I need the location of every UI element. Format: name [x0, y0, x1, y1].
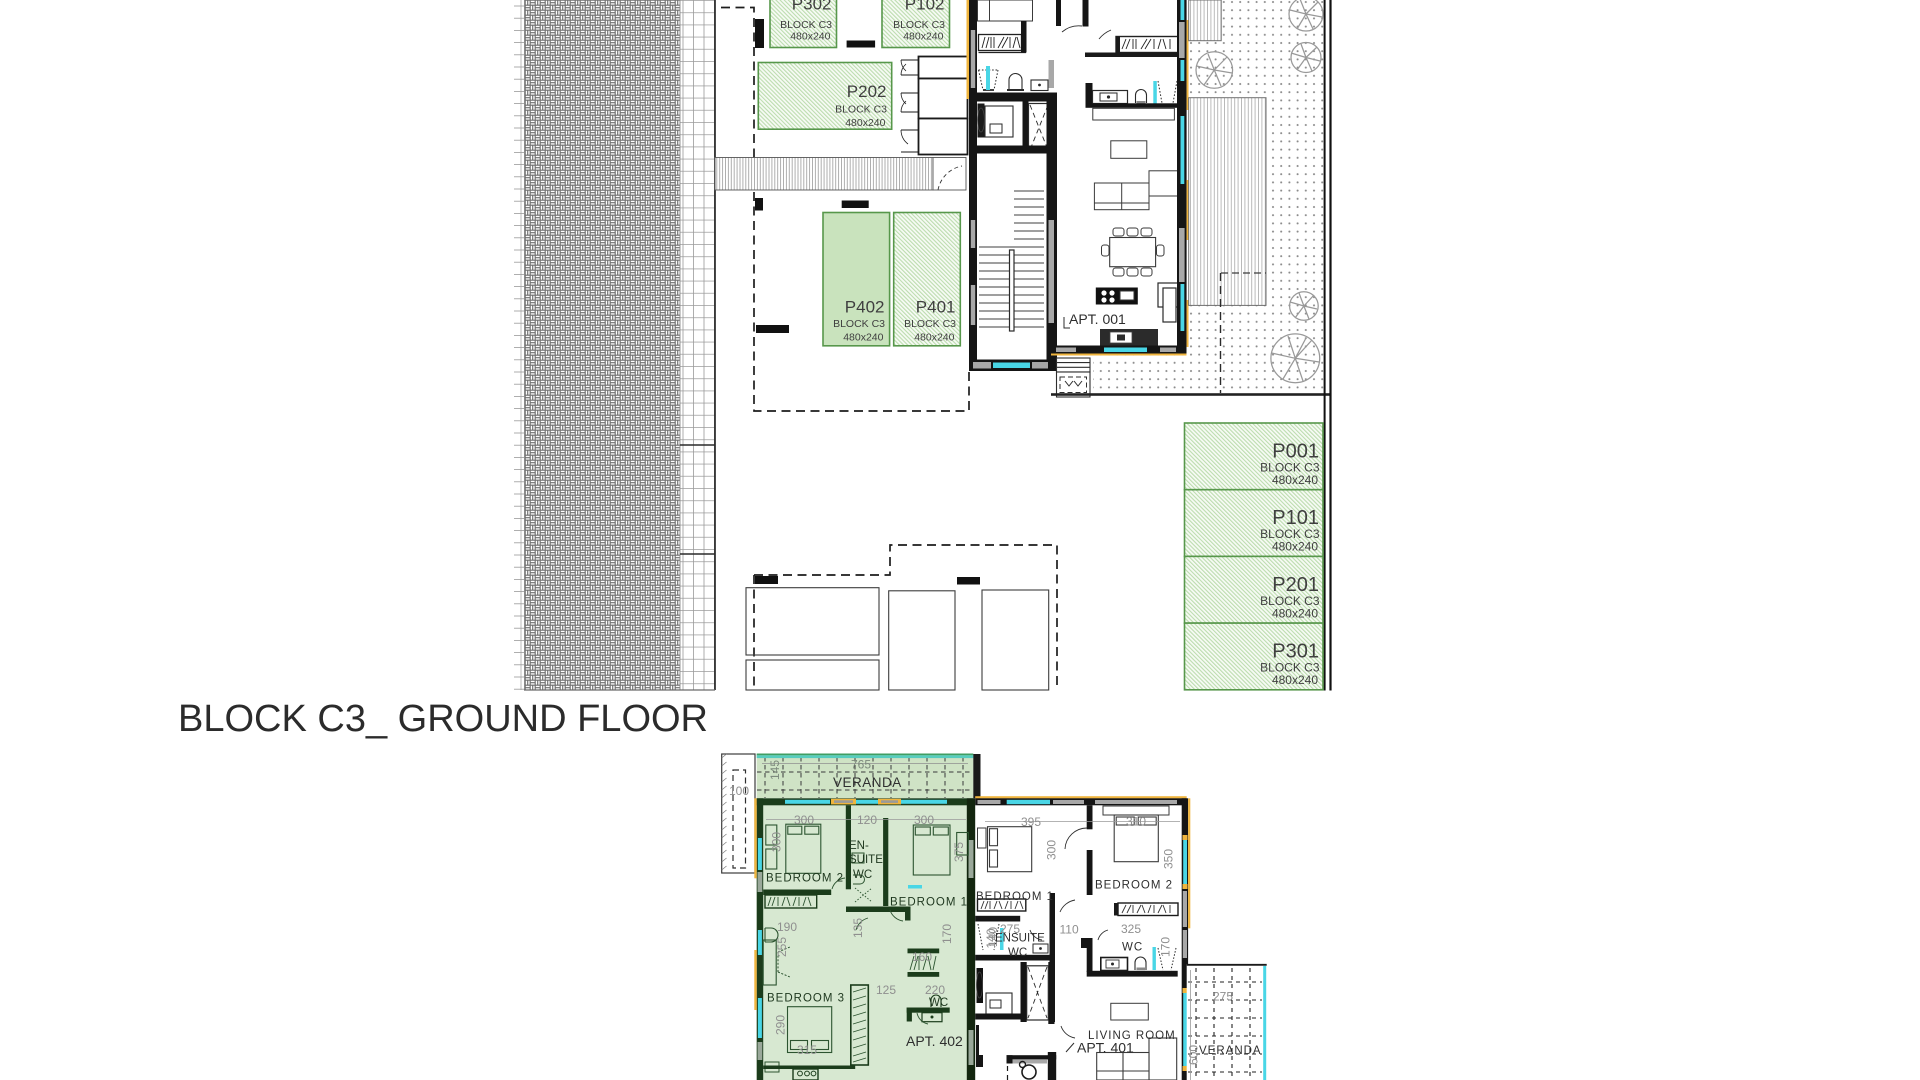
svg-text:290: 290: [774, 1015, 788, 1035]
svg-text:VERANDA: VERANDA: [1199, 1045, 1262, 1057]
svg-text:480x240: 480x240: [845, 117, 885, 129]
svg-text:BEDROOM 1: BEDROOM 1: [890, 897, 968, 909]
svg-text:BLOCK C3: BLOCK C3: [780, 19, 832, 31]
svg-text:P001: P001: [1272, 441, 1319, 463]
svg-text:275: 275: [1213, 990, 1233, 1004]
svg-text:315: 315: [797, 1043, 817, 1057]
svg-text:300: 300: [1045, 840, 1059, 860]
svg-text:P102: P102: [905, 0, 945, 14]
svg-text:WC: WC: [1122, 942, 1143, 954]
svg-text:100: 100: [729, 784, 749, 798]
svg-text:BLOCK C3: BLOCK C3: [904, 318, 956, 330]
svg-text:275: 275: [1000, 922, 1020, 936]
svg-text:BLOCK C3: BLOCK C3: [893, 19, 945, 31]
svg-text:480x240: 480x240: [1272, 673, 1318, 687]
svg-text:160: 160: [912, 950, 932, 964]
svg-text:220: 220: [925, 983, 945, 997]
svg-text:BLOCK C3_ GROUND FLOOR: BLOCK C3_ GROUND FLOOR: [178, 698, 708, 740]
svg-text:480x240: 480x240: [914, 332, 954, 344]
svg-text:BLOCK C3: BLOCK C3: [835, 104, 887, 116]
svg-text:300: 300: [914, 813, 934, 827]
svg-text:480x240: 480x240: [1272, 606, 1318, 620]
svg-text:325: 325: [1121, 922, 1141, 936]
svg-text:350: 350: [1162, 849, 1176, 869]
svg-text:P302: P302: [792, 0, 832, 14]
svg-text:255: 255: [775, 937, 789, 957]
svg-text:WC: WC: [929, 997, 948, 1009]
svg-text:480x240: 480x240: [843, 332, 883, 344]
svg-text:P101: P101: [1272, 507, 1319, 529]
svg-text:APT. 402: APT. 402: [906, 1033, 963, 1049]
svg-text:WC: WC: [853, 869, 872, 881]
svg-text:APT. 001: APT. 001: [1069, 311, 1126, 327]
svg-text:BLOCK C3: BLOCK C3: [833, 318, 885, 330]
svg-text:140: 140: [984, 928, 998, 948]
svg-text:BEDROOM 3: BEDROOM 3: [767, 993, 845, 1005]
svg-text:170: 170: [1159, 937, 1173, 957]
svg-text:P401: P401: [916, 298, 956, 317]
svg-text:EN-: EN-: [849, 840, 869, 852]
svg-text:120: 120: [857, 813, 877, 827]
svg-text:P402: P402: [845, 298, 885, 317]
svg-text:P301: P301: [1272, 641, 1319, 663]
svg-text:375: 375: [952, 842, 966, 862]
svg-text:480x240: 480x240: [790, 31, 830, 43]
svg-text:395: 395: [1021, 815, 1041, 829]
svg-text:SUITE: SUITE: [849, 854, 883, 866]
svg-text:135: 135: [851, 918, 865, 938]
svg-text:VERANDA: VERANDA: [833, 775, 902, 790]
svg-text:BEDROOM 2: BEDROOM 2: [766, 873, 844, 885]
svg-text:300: 300: [770, 832, 784, 852]
svg-text:765: 765: [851, 758, 871, 772]
svg-text:480x240: 480x240: [1272, 540, 1318, 554]
svg-text:BEDROOM 2: BEDROOM 2: [1095, 880, 1173, 892]
svg-text:170: 170: [940, 924, 954, 944]
svg-text:APT. 401: APT. 401: [1077, 1040, 1134, 1056]
svg-text:P202: P202: [847, 82, 887, 101]
svg-text:BEDROOM 1: BEDROOM 1: [976, 891, 1054, 903]
svg-text:480x240: 480x240: [1272, 473, 1318, 487]
svg-text:P201: P201: [1272, 574, 1319, 596]
svg-text:480x240: 480x240: [903, 31, 943, 43]
svg-text:110: 110: [1060, 923, 1079, 937]
svg-text:WC: WC: [1008, 947, 1027, 959]
svg-text:190: 190: [777, 920, 797, 934]
svg-text:145: 145: [768, 760, 782, 780]
svg-text:125: 125: [876, 983, 896, 997]
svg-text:300: 300: [794, 813, 814, 827]
svg-text:310: 310: [1126, 815, 1146, 829]
